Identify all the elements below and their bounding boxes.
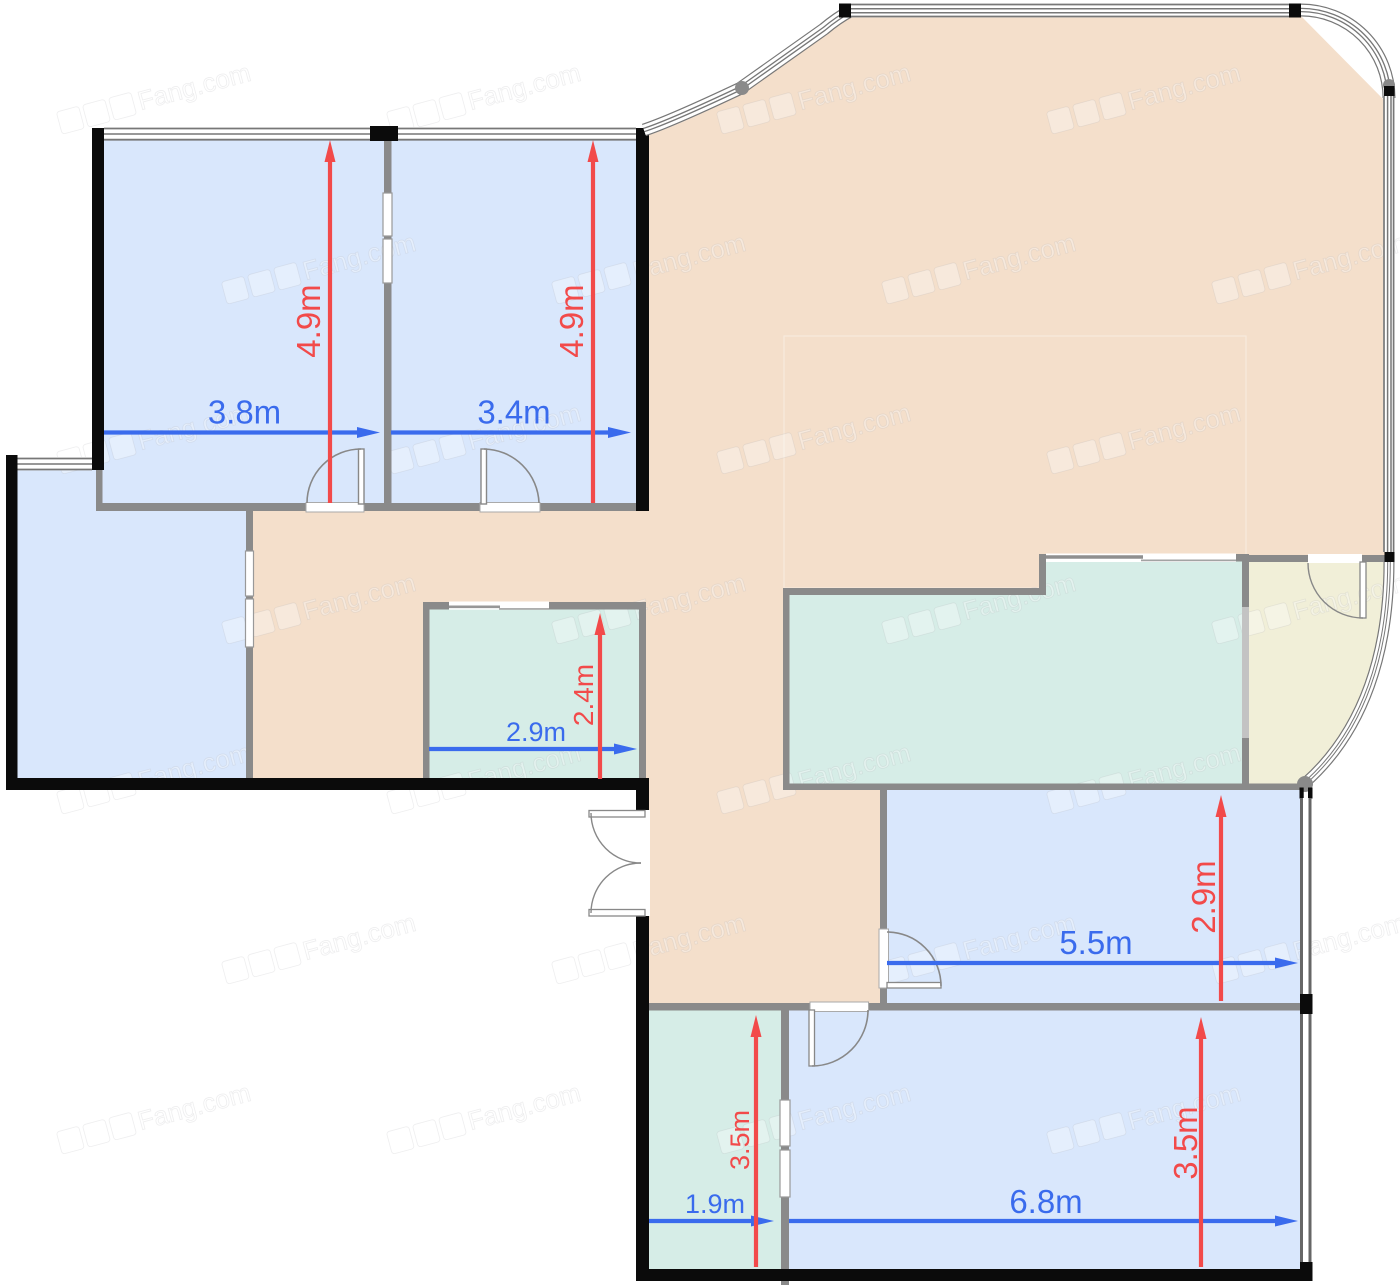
svg-text:4.9m: 4.9m <box>553 284 590 357</box>
svg-text:2.9m: 2.9m <box>1185 860 1222 933</box>
svg-text:Fang.com: Fang.com <box>134 57 253 116</box>
svg-text:6.8m: 6.8m <box>1009 1183 1082 1220</box>
svg-text:3.5m: 3.5m <box>725 1110 755 1170</box>
svg-text:Fang.com: Fang.com <box>134 1077 253 1136</box>
svg-text:Fang.com: Fang.com <box>299 907 418 966</box>
svg-text:3.4m: 3.4m <box>477 394 550 431</box>
svg-text:Fang.com: Fang.com <box>464 57 583 116</box>
svg-text:4.9m: 4.9m <box>290 284 327 357</box>
svg-text:2.4m: 2.4m <box>568 664 599 726</box>
svg-text:5.5m: 5.5m <box>1059 924 1132 961</box>
svg-text:2.9m: 2.9m <box>506 717 566 747</box>
svg-text:1.9m: 1.9m <box>685 1189 745 1219</box>
svg-text:3.8m: 3.8m <box>208 394 281 431</box>
svg-text:Fang.com: Fang.com <box>464 1077 583 1136</box>
svg-text:3.5m: 3.5m <box>1167 1106 1204 1179</box>
